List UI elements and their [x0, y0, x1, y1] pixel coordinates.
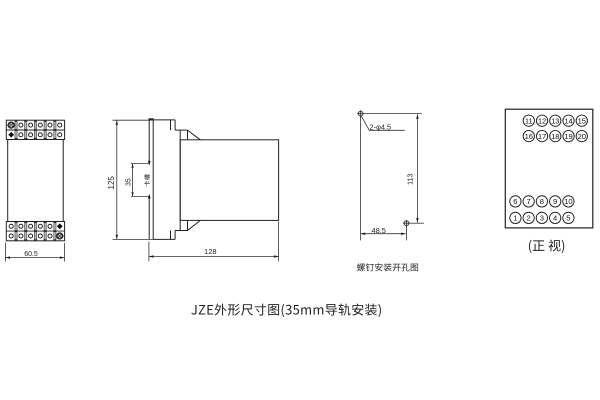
svg-text:14: 14: [564, 116, 572, 125]
svg-text:2: 2: [527, 214, 531, 223]
svg-text:5: 5: [566, 214, 570, 223]
svg-text:15: 15: [578, 116, 586, 125]
svg-text:1: 1: [513, 214, 517, 223]
svg-text:3: 3: [540, 214, 544, 223]
svg-text:48.5: 48.5: [372, 226, 386, 235]
svg-text:2-φ4.5: 2-φ4.5: [370, 122, 392, 131]
svg-text:20: 20: [578, 132, 586, 141]
svg-text:8: 8: [540, 197, 544, 206]
svg-text:19: 19: [564, 132, 572, 141]
svg-text:128: 128: [204, 247, 217, 256]
svg-text:16: 16: [525, 132, 533, 141]
svg-text:4: 4: [553, 214, 557, 223]
svg-text:12: 12: [538, 116, 546, 125]
svg-text:35: 35: [126, 178, 133, 186]
svg-text:7: 7: [527, 197, 531, 206]
svg-text:6: 6: [513, 197, 517, 206]
svg-text:11: 11: [525, 116, 533, 125]
svg-text:9: 9: [553, 197, 557, 206]
svg-text:125: 125: [107, 176, 116, 190]
svg-text:113: 113: [407, 174, 414, 185]
svg-text:10: 10: [564, 197, 572, 206]
svg-text:13: 13: [551, 116, 559, 125]
svg-text:18: 18: [551, 132, 559, 141]
svg-text:60.5: 60.5: [24, 251, 38, 258]
svg-text:17: 17: [538, 132, 546, 141]
